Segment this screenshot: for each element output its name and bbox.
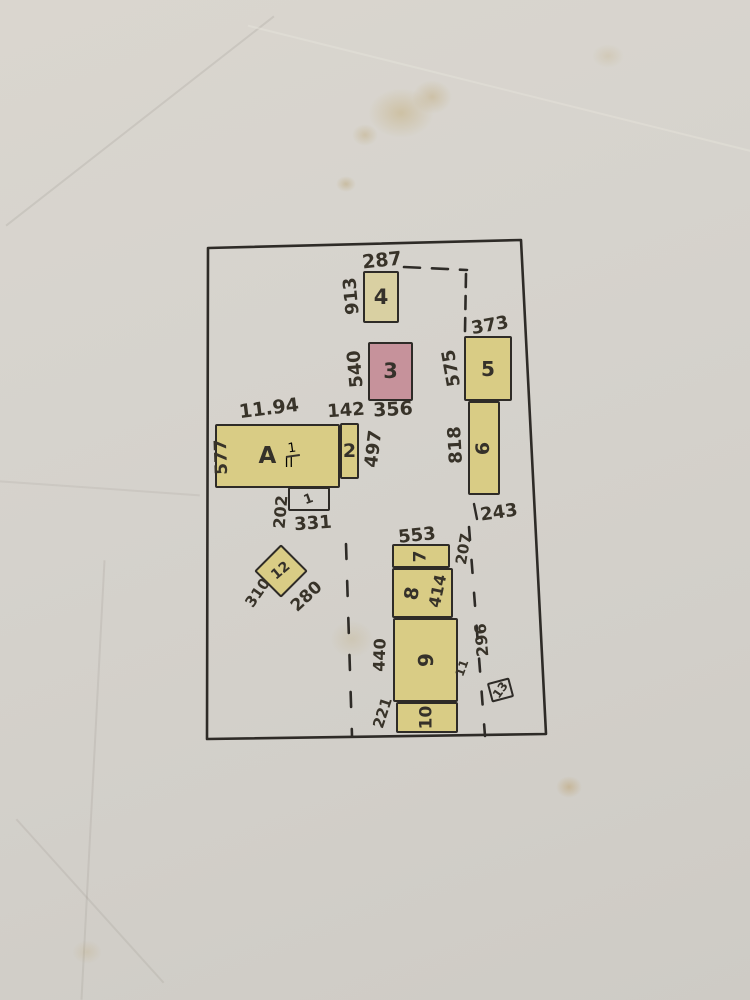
building-1: 1	[288, 487, 330, 511]
dimension-label-913: 913	[341, 276, 362, 315]
building-9: 9	[393, 618, 458, 702]
dimension-label-818: 818	[446, 426, 466, 464]
dimension-label-287: 287	[361, 249, 402, 272]
dimension-label-540: 540	[345, 349, 366, 388]
dimension-label-142: 142	[327, 401, 366, 422]
dashed-boundary-line	[404, 267, 467, 270]
building-number: A	[258, 445, 276, 468]
plan-lines	[0, 0, 750, 1000]
paper-sheet: A1II211243567891013 28791354014235637357…	[0, 0, 750, 1000]
dimension-label-577: 577	[213, 439, 231, 475]
building-number: 9	[415, 653, 435, 667]
building-number: 12	[269, 559, 293, 582]
fraction-numerator: 1	[284, 441, 300, 458]
building-number: 7	[413, 550, 430, 562]
dimension-label-356: 356	[373, 399, 414, 420]
building-5: 5	[464, 336, 512, 401]
building-number: 8	[402, 585, 423, 601]
dimension-label-202: 202	[272, 495, 291, 530]
building-2: 2	[340, 423, 359, 479]
building-A: A1II	[215, 424, 340, 488]
dimension-label-331: 331	[294, 514, 333, 535]
building-number: 3	[383, 361, 398, 382]
dimension-label-243: 243	[479, 501, 519, 524]
dimension-tick	[474, 504, 477, 519]
building-6: 6	[468, 401, 500, 495]
floors-fraction: 1II	[282, 442, 296, 470]
dimension-label-296: 296	[473, 623, 492, 658]
building-number: 6	[474, 441, 493, 454]
dashed-boundary-line	[346, 544, 352, 736]
building-number: 5	[481, 359, 495, 379]
dimension-label-553: 553	[397, 525, 436, 547]
building-3: 3	[368, 342, 413, 401]
building-number: 1	[303, 491, 316, 506]
building-number: 2	[343, 442, 356, 461]
building-number: 4	[374, 287, 389, 308]
dashed-boundary-line	[465, 274, 466, 331]
fraction-denominator: II	[285, 457, 295, 470]
building-4: 4	[363, 271, 399, 323]
dimension-label-440: 440	[371, 638, 388, 672]
building-number: 13	[491, 680, 510, 701]
building-10: 10	[396, 702, 458, 733]
building-number: 10	[418, 706, 435, 730]
dimension-label-497: 497	[363, 429, 385, 468]
